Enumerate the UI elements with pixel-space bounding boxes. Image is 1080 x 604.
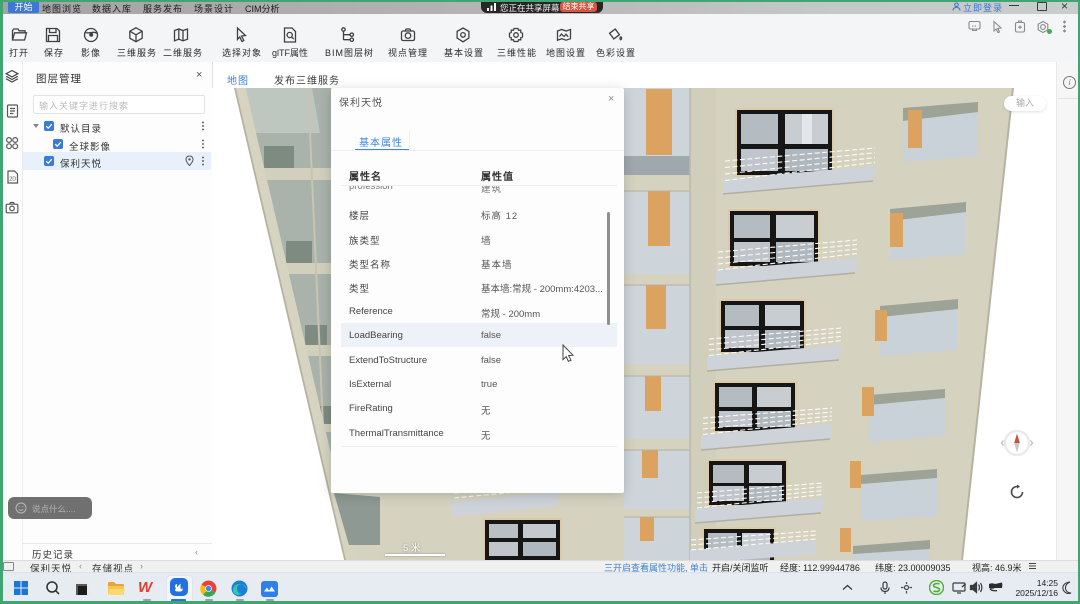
svg-text:2D: 2D [9, 177, 16, 183]
